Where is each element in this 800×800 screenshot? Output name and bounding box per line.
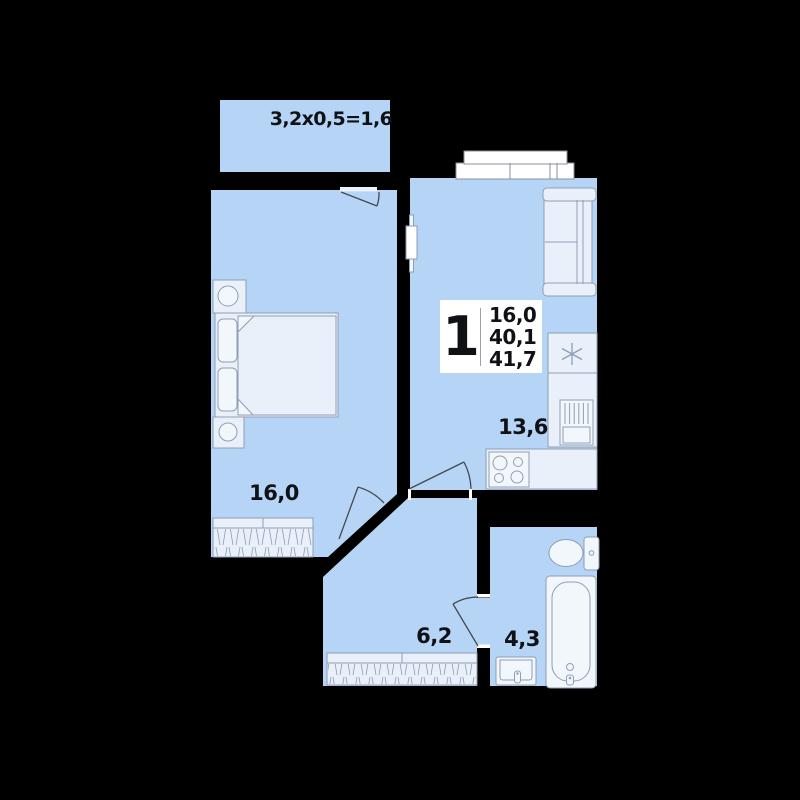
toilet [549,537,599,570]
bathroom-door-jamb [477,645,490,649]
bathroom-area-label: 4,3 [504,627,540,651]
bathroom-door-jamb [477,594,490,598]
rooms-count: 1 [440,310,480,364]
wardrobe-hallway [327,653,477,685]
sofa [543,188,596,296]
kitchen-window [456,151,574,179]
kitchen-area-label: 13,6 [498,415,548,439]
nightstand-top [213,280,246,313]
living-area-value: 16,0 [489,304,536,326]
bathtub [546,576,596,688]
unit-info-badge: 1 16,0 40,1 41,7 [440,300,542,373]
apartment-area-value: 40,1 [489,326,536,348]
door-arc-bathroom [453,597,478,646]
radiator [406,215,417,272]
door-arc-kitchen [409,462,471,489]
bed [215,313,338,417]
stove [489,452,529,487]
badge-areas: 16,0 40,1 41,7 [481,304,536,370]
door-arc-bedroom [339,487,384,539]
bedroom-area-label: 16,0 [249,481,299,505]
bathroom-sink [496,657,536,685]
hallway-area-label: 6,2 [416,624,452,648]
kitchen-door-jamb [408,489,411,500]
pillow [218,319,237,362]
kitchen-sink [560,400,593,445]
pillow [218,368,237,411]
balcony-doorway [340,187,377,192]
wardrobe-bedroom [213,518,313,557]
floor-plan: 3,2x0,5=1,6 16,0 13,6 6,2 4,3 1 16,0 40,… [0,0,800,800]
plan-linework [0,0,800,800]
total-area-value: 41,7 [489,348,536,370]
nightstand-bottom [213,417,244,448]
door-arc-balcony [341,192,379,206]
balcony-dimension-label: 3,2x0,5=1,6 [270,108,393,130]
kitchen-door-jamb [469,489,472,500]
